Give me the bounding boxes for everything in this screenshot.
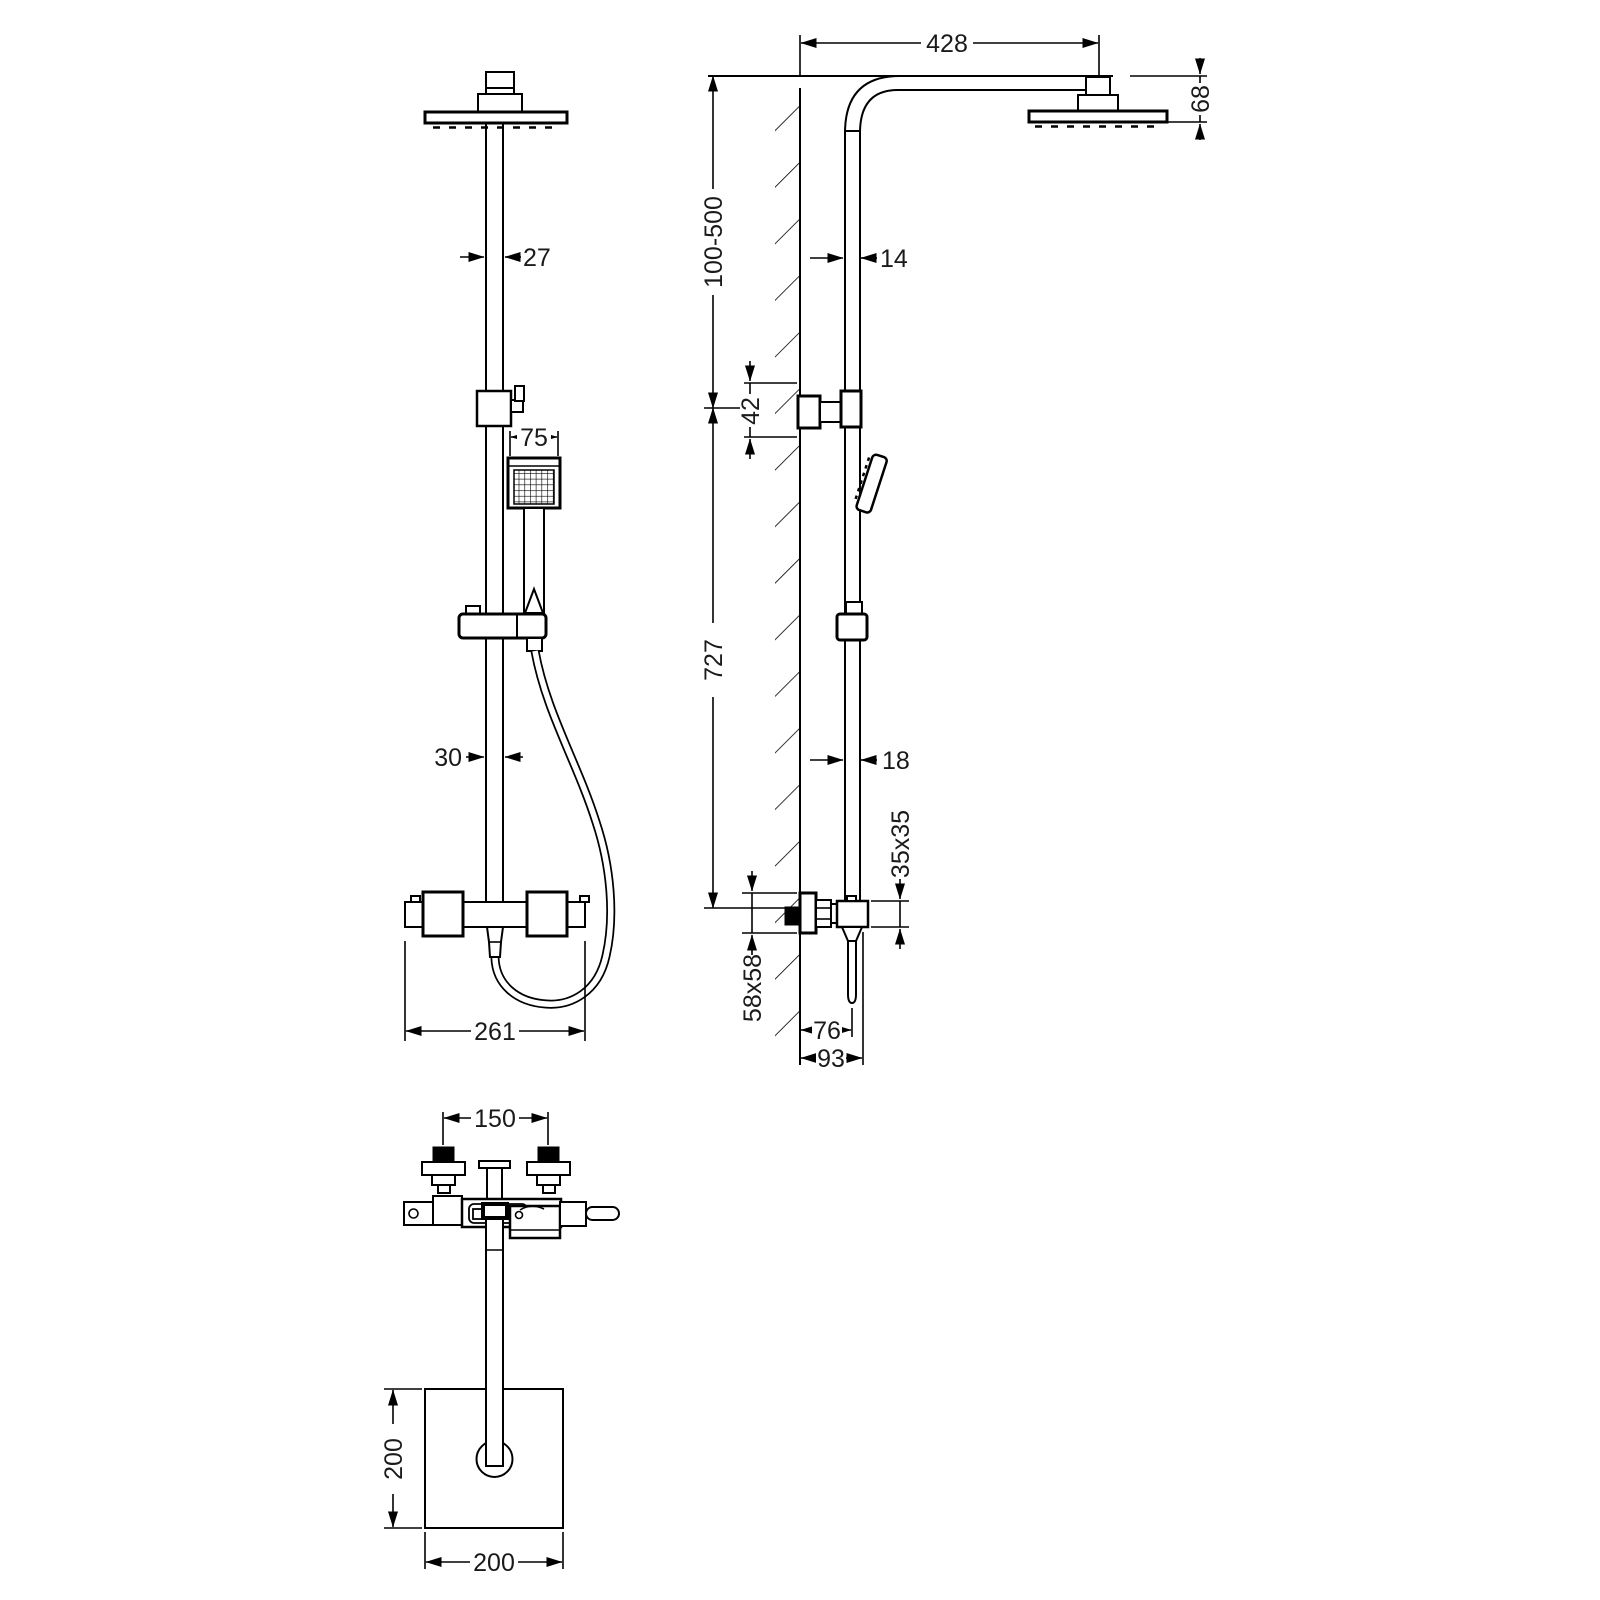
technical-drawing-canvas: 27 75 30 261 <box>0 0 1600 1600</box>
dim-label-upper-pipe-width: 14 <box>880 245 908 273</box>
inlet-right-plan <box>527 1147 570 1193</box>
riser-tee-plan <box>479 1161 510 1201</box>
overhead-shower-plan <box>425 1204 563 1528</box>
valve-handle-right <box>527 892 567 936</box>
shower-hose-front <box>495 651 611 1004</box>
hose-connector-front <box>527 638 542 651</box>
dim-label-height-adjustment: 100-500 <box>700 196 728 288</box>
overhead-shower-side <box>1029 77 1167 127</box>
shower-head-plate-front <box>425 112 567 123</box>
head-mount-front <box>478 94 522 112</box>
thermostatic-valve-front <box>405 892 589 957</box>
dim-label-wall-bracket-height: 42 <box>737 397 765 425</box>
valve-plan <box>404 1196 619 1238</box>
handle-base-plan <box>510 1206 560 1238</box>
valve-body-side <box>837 901 868 927</box>
dim-label-rail-length: 727 <box>700 639 728 681</box>
dim-front-27: 27 <box>460 244 551 272</box>
riser-pipe-side <box>845 131 860 903</box>
handset-front <box>508 458 560 615</box>
diverter-front <box>477 386 524 426</box>
dim-front-75: 75 <box>510 424 558 456</box>
pipe-section-plan <box>483 1204 507 1218</box>
head-elbow-side <box>1086 77 1110 95</box>
dim-label-handset-width: 75 <box>520 424 548 452</box>
valve-lever-plan <box>586 1207 619 1220</box>
shower-head-plate-side <box>1029 111 1167 122</box>
handset-spray-grid <box>514 470 554 504</box>
dim-label-valve-width: 261 <box>474 1018 516 1046</box>
dim-side-428: 428 <box>800 30 1099 76</box>
valve-lever-neck <box>842 927 862 941</box>
slide-bracket-side <box>837 602 867 640</box>
dim-label-head-width: 200 <box>473 1549 515 1577</box>
wall-bracket-side <box>798 391 861 428</box>
dim-plan-200-vertical: 200 <box>380 1389 422 1528</box>
ceiling-elbow-front <box>486 72 514 94</box>
dim-label-wall-plate-square: 58x58 <box>739 954 767 1022</box>
dim-label-arm-projection: 428 <box>926 30 968 58</box>
valve-nut-side <box>816 900 831 927</box>
dim-label-arm-pipe-width: 27 <box>523 244 551 272</box>
dim-label-inlet-centres: 150 <box>474 1105 516 1133</box>
head-mount-side <box>1078 95 1118 111</box>
dim-plan-200-horizontal: 200 <box>425 1532 563 1577</box>
dim-side-68: 68 <box>1130 58 1215 140</box>
valve-handle-left <box>423 892 463 936</box>
down-pipe-plan <box>486 1218 503 1466</box>
overhead-shower-front <box>425 72 567 128</box>
shower-arm-side <box>708 76 1113 133</box>
plan-view: 150 200 200 <box>380 1105 619 1577</box>
dim-label-valve-projection: 93 <box>817 1045 845 1073</box>
front-view: 27 75 30 261 <box>405 72 611 1046</box>
dim-label-handle-projection: 76 <box>813 1017 841 1045</box>
dim-side-76: 76 <box>801 1008 852 1045</box>
dim-front-30: 30 <box>434 744 523 772</box>
dim-label-lower-pipe-width: 18 <box>882 747 910 775</box>
inlet-left-plan <box>422 1147 465 1193</box>
riser-pipe-front <box>486 123 503 903</box>
dim-label-head-drop: 68 <box>1187 85 1215 113</box>
dim-plan-150: 150 <box>443 1105 548 1145</box>
dim-label-head-depth: 200 <box>380 1438 408 1480</box>
dim-label-valve-body-square: 35x35 <box>887 810 915 878</box>
valve-lever-side <box>848 941 856 1003</box>
dim-side-100-500: 100-500 <box>700 76 748 408</box>
dim-side-35x35: 35x35 <box>871 810 915 949</box>
wall-plate-side <box>800 893 816 933</box>
side-view: 428 68 100-500 14 <box>700 30 1215 1073</box>
dim-label-riser-pipe-width: 30 <box>434 744 462 772</box>
